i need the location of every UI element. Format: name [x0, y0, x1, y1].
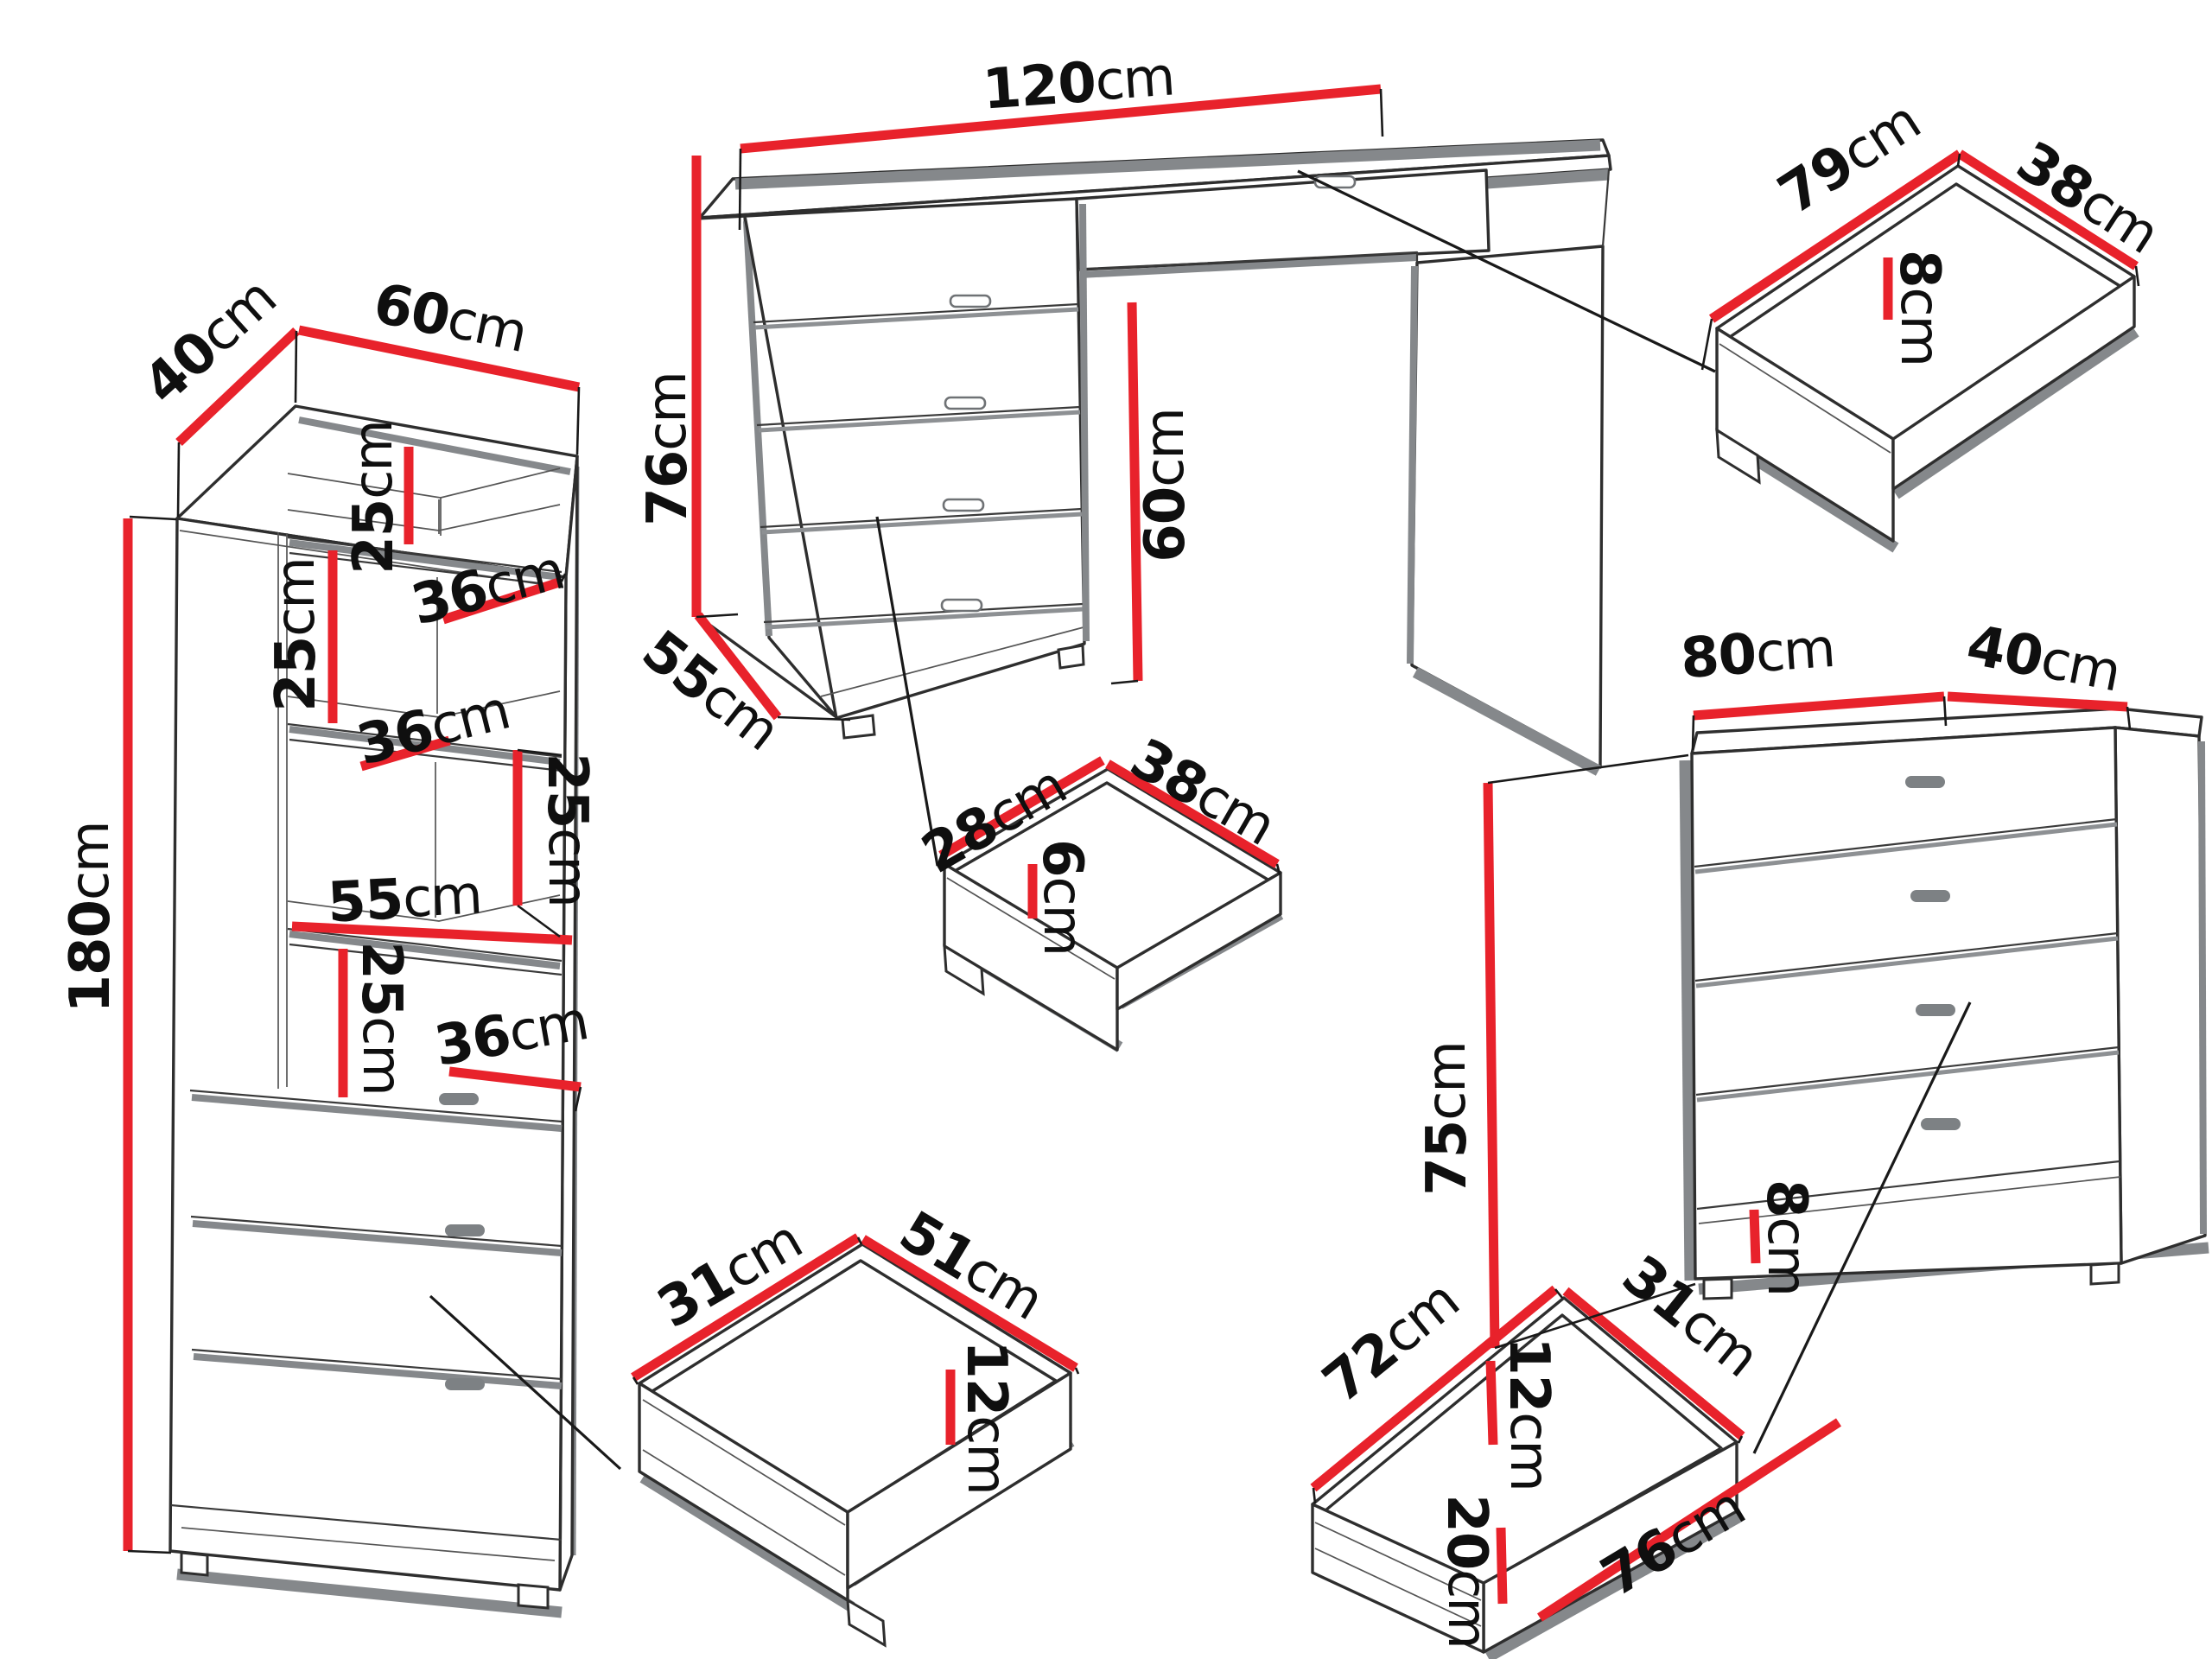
cabinet-ext-line-3: [296, 331, 296, 403]
drawer_bottom_middle-ext-line-1: [858, 1237, 861, 1244]
cabinet-label-40cm: 40cm: [131, 266, 289, 416]
chest-dim-line-2: [1488, 783, 1495, 1348]
drawer_bottom_middle-label-12cm: 12cm: [954, 1340, 1018, 1494]
desk-label-76cm: 76cm: [635, 372, 699, 526]
cabinet-drawer-handle-3: [445, 1378, 485, 1390]
chest-ext-line-2: [1693, 715, 1694, 750]
desk-ext-line-4: [1111, 681, 1138, 683]
chest-side-face: [2115, 728, 2205, 1263]
desk-drawer-handle-2: [945, 397, 985, 409]
cabinet-ext-line-1: [128, 1551, 171, 1553]
chest-label-75cm: 75cm: [1414, 1042, 1478, 1196]
cabinet-label-25cm: 25cm: [535, 753, 599, 906]
drawer_bottom_right-label-12cm: 12cm: [1497, 1337, 1560, 1491]
chest-label-80cm: 80cm: [1679, 616, 1836, 691]
chest-handle-2: [1910, 890, 1950, 902]
chest-handle-4: [1921, 1118, 1961, 1130]
bm-drawer-foot: [848, 1600, 885, 1645]
drawer_top_right-label-8cm: 8cm: [1887, 250, 1951, 365]
chest-dim-line-0: [1694, 696, 1944, 715]
furniture-dimension-sheet: 40cm60cm180cm25cm36cm25cm36cm25cm55cm25c…: [0, 0, 2212, 1659]
chest-handle-1: [1905, 776, 1945, 788]
desk-right-panel-inner-shadow: [1410, 266, 1414, 664]
desk-drawer-handle-3: [944, 499, 983, 511]
desk-drawer-handle-1: [950, 296, 990, 307]
desk-label-60cm: 60cm: [1133, 409, 1197, 563]
cabinet-ext-line-4: [577, 387, 579, 454]
desk-pedestal-right-shadow: [1083, 204, 1086, 641]
desk-ext-line-0: [740, 149, 741, 230]
desk-right-panel-top-edge: [1603, 169, 1609, 246]
cabinet-foot-left: [181, 1553, 207, 1575]
cabinet-ext-line-0: [130, 517, 176, 519]
drawer_bottom_right-dim-line-2: [1491, 1361, 1493, 1445]
cabinet-ext-line-2: [178, 442, 179, 517]
cabinet-label-25cm: 25cm: [264, 558, 327, 712]
drawer_top_right-ext-line-1: [2136, 266, 2139, 286]
cabinet-drawer-handle-2: [445, 1224, 485, 1236]
desk-drawer-handle-4: [942, 600, 982, 611]
cabinet-foot-right: [518, 1585, 548, 1608]
desk-foot-right: [1058, 645, 1084, 668]
chest-foot-right: [2091, 1263, 2119, 1284]
cabinet-label-25cm: 25cm: [349, 941, 413, 1095]
drawer_bottom_right-dim-line-3: [1501, 1528, 1503, 1604]
drawer_bottom_middle-ext-line-2: [1076, 1368, 1078, 1374]
drawer_bottom_right-label-20cm: 20cm: [1434, 1494, 1498, 1648]
cabinet-label-25cm: 25cm: [341, 421, 405, 575]
chest-side-edge-shadow: [2202, 741, 2203, 1234]
chest-label-40cm: 40cm: [1961, 613, 2124, 705]
cabinet-label-55cm: 55cm: [326, 863, 482, 936]
drawer_top_right-ext-line-0: [1702, 319, 1712, 370]
cabinet-drawer-handle-1: [439, 1093, 479, 1105]
desk-ext-line-1: [1381, 89, 1382, 137]
chest-label-8cm: 8cm: [1754, 1179, 1818, 1295]
chest-dim-line-3: [1754, 1210, 1756, 1263]
chest-left-shadow: [1685, 760, 1690, 1281]
drawer_desk_small-label-6cm: 6cm: [1030, 839, 1094, 955]
drawer_bottom_right-ext-line-0: [1313, 1488, 1315, 1503]
chest-handle-3: [1916, 1004, 1955, 1016]
cabinet-label-180cm: 180cm: [58, 822, 122, 1013]
